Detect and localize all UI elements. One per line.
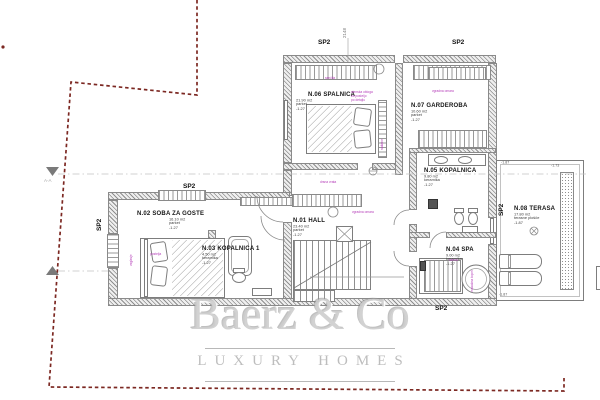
opening-lines xyxy=(396,63,402,80)
room-elevation: -1.27 xyxy=(424,183,465,187)
zone-label-sp2-vertical: SP2 xyxy=(97,219,104,231)
zone-label-sp2: SP2 xyxy=(452,40,464,47)
annotation-radiator: radiator xyxy=(381,139,384,150)
door-arc xyxy=(430,232,446,248)
shaft-cross xyxy=(336,226,353,242)
dimension-text: 2148 xyxy=(343,28,348,38)
room-label-guest-room: N.02 SOBA ZA GOSTE 16.10 m2parket-1.27 xyxy=(137,211,204,234)
room-name: N.05 KOPALNICA xyxy=(424,168,476,174)
room-name: N.04 SPA xyxy=(446,247,474,253)
door-arc xyxy=(394,210,409,225)
room-label-hall: N.01 HALL 23.40 m2parket-1.27 xyxy=(293,218,325,241)
property-boundary-line xyxy=(49,0,564,391)
room-label-terrace: N.08 TERASA 17.80 m2terasne plošče-1.87 xyxy=(514,206,555,229)
elevation-mark: -1.87 xyxy=(501,161,509,165)
annotation-sauna: savna xyxy=(449,259,458,262)
room-name: N.03 KOPALNICA 1 xyxy=(202,246,260,252)
annotation-closet-top: drsna vrata xyxy=(320,181,336,184)
elevation-mark: -1.73 xyxy=(551,164,559,168)
annotation-guest-bed: postelja xyxy=(150,253,161,256)
annotation-tub: masažna kopel xyxy=(471,270,474,292)
boundary-point xyxy=(1,45,4,48)
room-name: N.07 GARDEROBA xyxy=(411,103,467,109)
column-icon xyxy=(374,64,384,74)
room-label-garderoba: N.07 GARDEROBA 10.60 m2parket-1.27 xyxy=(411,103,467,126)
zone-label-sp2: SP2 xyxy=(318,40,330,47)
annotation-shutter: senčila xyxy=(325,77,335,80)
section-marker-icon xyxy=(46,167,59,176)
room-label-bath1: N.03 KOPALNICA 1 4.50 m2keramika-1.27 xyxy=(202,246,260,269)
linework-overlay xyxy=(0,0,600,400)
annotation-guest-bed-side: vzglavje xyxy=(130,254,133,266)
room-name: N.08 TERASA xyxy=(514,206,555,212)
room-elevation: -1.27 xyxy=(293,233,318,237)
room-name: N.01 HALL xyxy=(293,218,325,224)
room-elevation: -1.27 xyxy=(296,107,342,111)
elevation-mark: -1.87 xyxy=(499,293,507,297)
stair-break-line xyxy=(294,242,371,288)
room-name: N.02 SOBA ZA GOSTE xyxy=(137,211,204,217)
door-arc xyxy=(394,251,409,266)
room-elevation: -1.27 xyxy=(202,261,247,265)
room-elevation: -1.27 xyxy=(446,262,468,266)
room-elevation: -1.27 xyxy=(169,226,196,230)
door-arc xyxy=(261,216,285,240)
pouf-icon xyxy=(328,207,338,217)
floor-plan-canvas: N.01 HALL 23.40 m2parket-1.27 N.02 SOBA … xyxy=(0,0,600,400)
room-elevation: -1.27 xyxy=(411,118,455,122)
section-label: A-A xyxy=(44,179,52,184)
room-label-bedroom: N.06 SPALNICA 21.90 m2parket-1.27 xyxy=(308,92,355,115)
zone-label-sp2: SP2 xyxy=(435,306,447,313)
room-name: N.06 SPALNICA xyxy=(308,92,355,98)
annotation-bedroom-note: po detajlu xyxy=(351,99,365,102)
zone-label-sp2-vertical: SP2 xyxy=(499,204,506,216)
room-label-bathroom: N.05 KOPALNICA 9.80 m2keramika-1.27 xyxy=(424,168,476,191)
annotation-closet-side: vgradna omara xyxy=(352,211,374,214)
annotation-wardrobe: vgradna omara xyxy=(432,90,454,93)
zone-label-sp2: SP2 xyxy=(183,184,195,191)
room-elevation: -1.87 xyxy=(514,221,546,225)
